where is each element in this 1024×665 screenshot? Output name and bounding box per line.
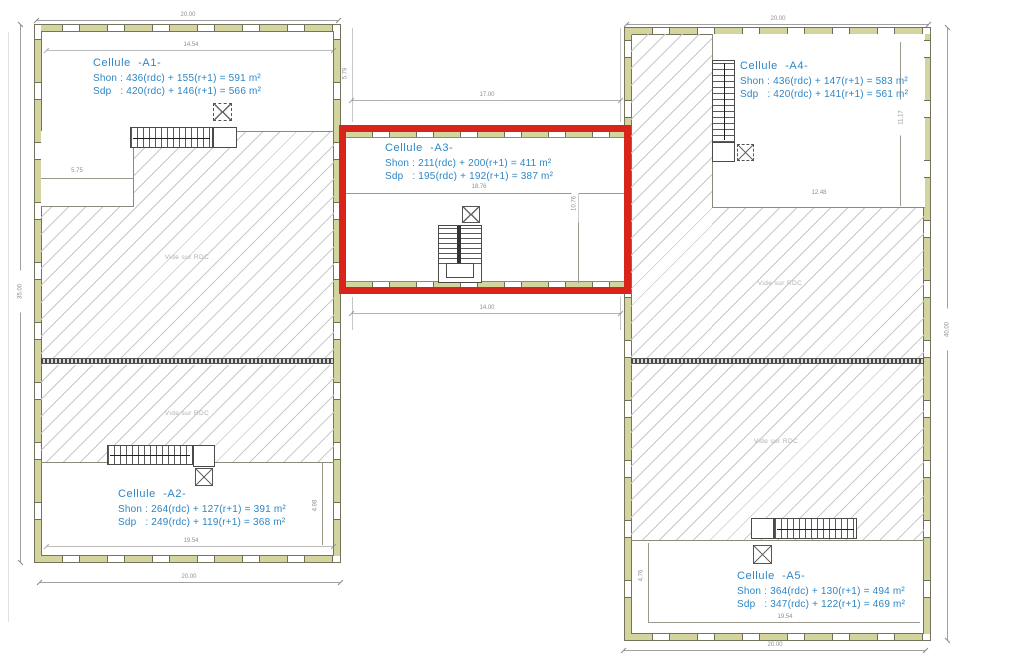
a5-partition-line-h: [648, 622, 920, 623]
window-strip-bottom: [625, 634, 930, 640]
a5-partition-line-v: [648, 543, 649, 622]
extension-line: [352, 28, 353, 122]
vide-sur-rdc-label: Vide sur RDC: [746, 438, 806, 445]
a3-stair-return: [446, 263, 474, 278]
a4-shon: Shon : 436(rdc) + 147(r+1) = 583 m²: [740, 75, 908, 88]
dimension-line: [37, 20, 338, 21]
scan-edge-artifact: [8, 32, 9, 622]
expansion-joint: [41, 358, 334, 364]
a1-elevator-shaft: [213, 103, 232, 121]
a3-title: Cellule -A3-: [385, 142, 553, 154]
dimension-line: [352, 100, 620, 101]
a2-label-block: Cellule -A2- Shon : 264(rdc) + 127(r+1) …: [118, 488, 286, 529]
right-building-outline: [625, 28, 930, 640]
dim-label: 20.00: [170, 574, 208, 581]
window-strip-right: [924, 28, 930, 640]
a1-shon: Shon : 436(rdc) + 155(r+1) = 591 m²: [93, 72, 261, 85]
a5-staircase: [774, 518, 857, 539]
a1-title: Cellule -A1-: [93, 57, 261, 69]
void-hatch-area: [631, 34, 712, 358]
dimension-line: [352, 313, 620, 314]
dimension-line: [47, 546, 333, 547]
a1-step-line: [41, 178, 133, 179]
a3-elevator-shaft: [462, 206, 480, 223]
void-hatch-area: [631, 364, 924, 541]
dim-label: 14.00: [466, 305, 508, 312]
a2-stair-landing: [193, 445, 215, 467]
a2-title: Cellule -A2-: [118, 488, 286, 500]
dim-label: 11.17: [899, 100, 906, 136]
a2-elevator-shaft: [195, 468, 213, 486]
dim-label: 17.00: [466, 92, 508, 99]
dim-label: 40.00: [945, 309, 952, 351]
dim-label: 4.98: [313, 490, 320, 522]
a4-staircase: [712, 60, 735, 143]
dim-label: 20.00: [756, 642, 794, 649]
window-strip-top: [35, 25, 340, 31]
vide-sur-rdc-label: Vide sur RDC: [157, 254, 217, 261]
a5-title: Cellule -A5-: [737, 570, 905, 582]
a3-sdp: Sdp : 195(rdc) + 192(r+1) = 387 m²: [385, 170, 553, 183]
window-strip-bottom: [35, 556, 340, 562]
a5-elevator-shaft: [753, 545, 772, 564]
dim-label: 20.00: [169, 12, 207, 19]
dim-label: 5.79: [343, 58, 350, 90]
a2-sdp: Sdp : 249(rdc) + 119(r+1) = 368 m²: [118, 516, 286, 529]
dim-label: 4.76: [639, 560, 646, 592]
dimension-line: [40, 582, 340, 583]
window-strip-top: [625, 28, 930, 34]
a1-stair-landing: [213, 127, 237, 148]
vide-sur-rdc-label: Vide sur RDC: [157, 410, 217, 417]
extension-line: [620, 28, 621, 122]
a3-label-block: Cellule -A3- Shon : 211(rdc) + 200(r+1) …: [385, 142, 553, 183]
dimension-line: [624, 650, 925, 651]
a5-shon: Shon : 364(rdc) + 130(r+1) = 494 m²: [737, 585, 905, 598]
a1-staircase: [130, 127, 213, 148]
vide-sur-rdc-label: Vide sur RDC: [750, 280, 810, 287]
dim-label: 12.48: [800, 190, 838, 197]
dim-label: 10.76: [572, 185, 579, 223]
dim-label: 35.00: [18, 271, 25, 313]
a5-sdp: Sdp : 347(rdc) + 122(r+1) = 469 m²: [737, 598, 905, 611]
a1-sdp: Sdp : 420(rdc) + 146(r+1) = 566 m²: [93, 85, 261, 98]
dim-label: 5.75: [62, 168, 92, 175]
left-building-outline: [35, 25, 340, 562]
a4-stair-landing: [712, 142, 735, 162]
a4-sdp: Sdp : 420(rdc) + 141(r+1) = 561 m²: [740, 88, 908, 101]
window-strip-left: [625, 28, 631, 640]
a5-stair-landing: [751, 518, 774, 539]
window-strip-left: [35, 25, 41, 562]
a2-shon: Shon : 264(rdc) + 127(r+1) = 391 m²: [118, 503, 286, 516]
floor-plan-canvas: 20.00 20.00 20.00 20.00 35.00 40.00 14.5…: [0, 0, 1024, 665]
a3-shon: Shon : 211(rdc) + 200(r+1) = 411 m²: [385, 157, 553, 170]
a3-wall-bottom: [346, 281, 624, 287]
a4-title: Cellule -A4-: [740, 60, 908, 72]
a5-label-block: Cellule -A5- Shon : 364(rdc) + 130(r+1) …: [737, 570, 905, 611]
dim-label: 18.76: [458, 184, 500, 191]
a2-partition-line: [322, 462, 323, 545]
dim-label: 14.54: [172, 42, 210, 49]
void-hatch-area: [712, 207, 924, 358]
dim-label: 20.00: [759, 16, 797, 23]
a3-wall-top: [346, 132, 624, 138]
dim-label: 19.54: [172, 538, 210, 545]
a1-label-block: Cellule -A1- Shon : 436(rdc) + 155(r+1) …: [93, 57, 261, 98]
a4-elevator-shaft: [737, 144, 754, 161]
dimension-line: [627, 24, 928, 25]
a4-label-block: Cellule -A4- Shon : 436(rdc) + 147(r+1) …: [740, 60, 908, 101]
a2-staircase: [107, 445, 193, 465]
a3-partition-line-h: [346, 193, 624, 194]
dimension-line: [47, 50, 333, 51]
a3-staircase: [438, 225, 482, 283]
dim-label: 19.54: [766, 614, 804, 621]
